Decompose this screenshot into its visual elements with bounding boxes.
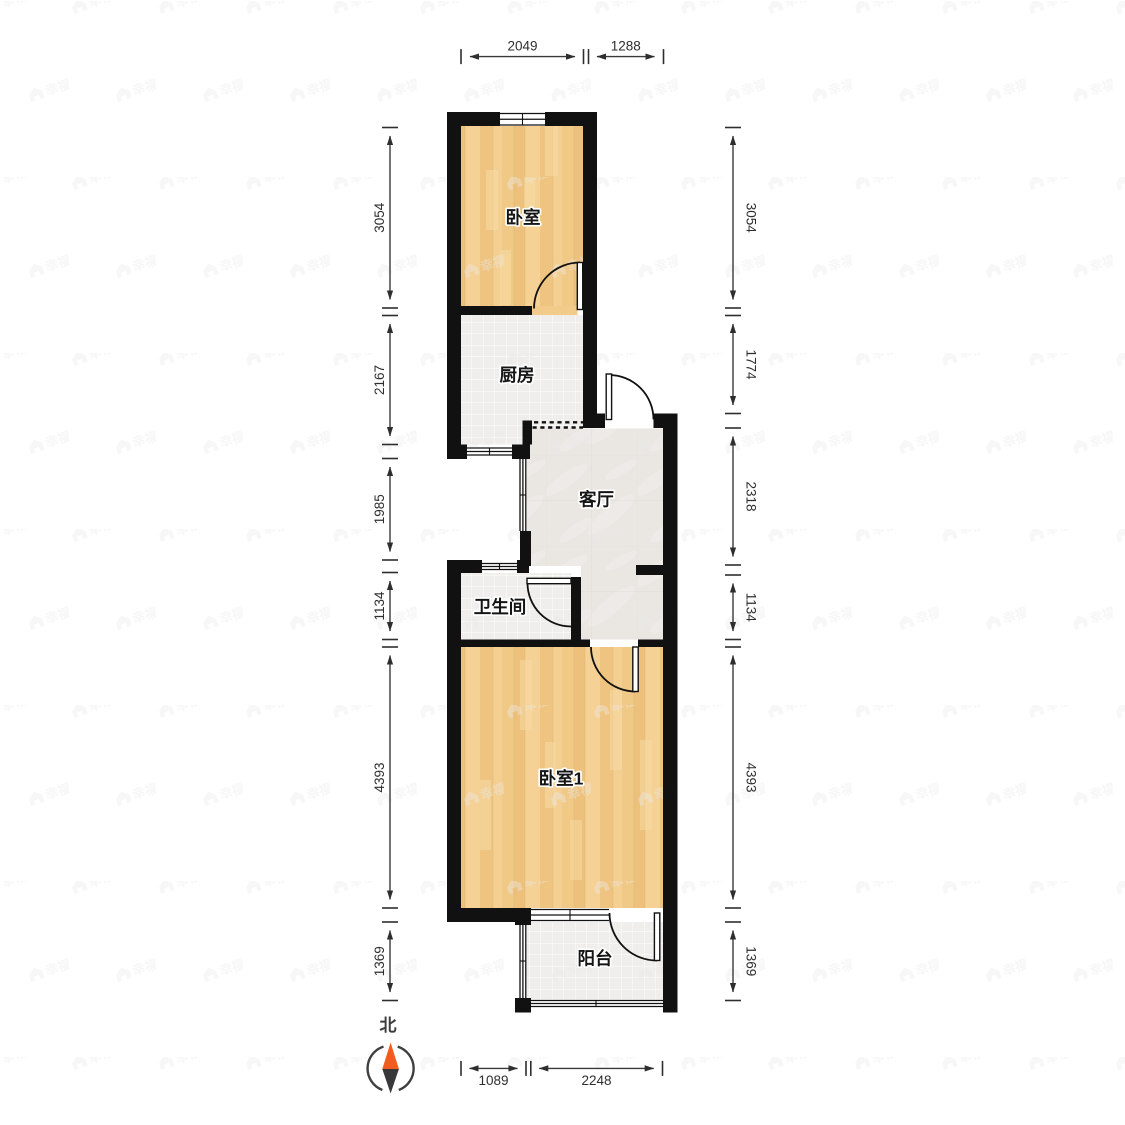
svg-text:卫生间: 卫生间 xyxy=(474,597,527,617)
svg-text:3054: 3054 xyxy=(744,203,759,234)
svg-text:2248: 2248 xyxy=(581,1073,611,1088)
svg-text:卧室1: 卧室1 xyxy=(539,769,584,789)
svg-text:1134: 1134 xyxy=(372,591,387,621)
svg-text:1369: 1369 xyxy=(372,946,387,976)
svg-text:3054: 3054 xyxy=(372,202,387,233)
svg-text:1774: 1774 xyxy=(744,349,759,380)
svg-text:客厅: 客厅 xyxy=(578,490,614,510)
svg-text:1134: 1134 xyxy=(744,593,759,623)
svg-text:1985: 1985 xyxy=(372,494,387,524)
svg-text:4393: 4393 xyxy=(744,762,759,792)
svg-text:厨房: 厨房 xyxy=(500,365,535,385)
svg-text:2167: 2167 xyxy=(372,365,387,395)
svg-text:2318: 2318 xyxy=(744,481,759,511)
svg-text:2049: 2049 xyxy=(507,39,537,54)
svg-text:北: 北 xyxy=(380,1016,397,1035)
svg-text:阳台: 阳台 xyxy=(578,949,613,969)
svg-text:1288: 1288 xyxy=(611,39,641,54)
svg-text:1089: 1089 xyxy=(478,1073,508,1088)
svg-text:1369: 1369 xyxy=(744,946,759,976)
svg-text:卧室: 卧室 xyxy=(506,208,541,228)
svg-text:4393: 4393 xyxy=(372,762,387,792)
